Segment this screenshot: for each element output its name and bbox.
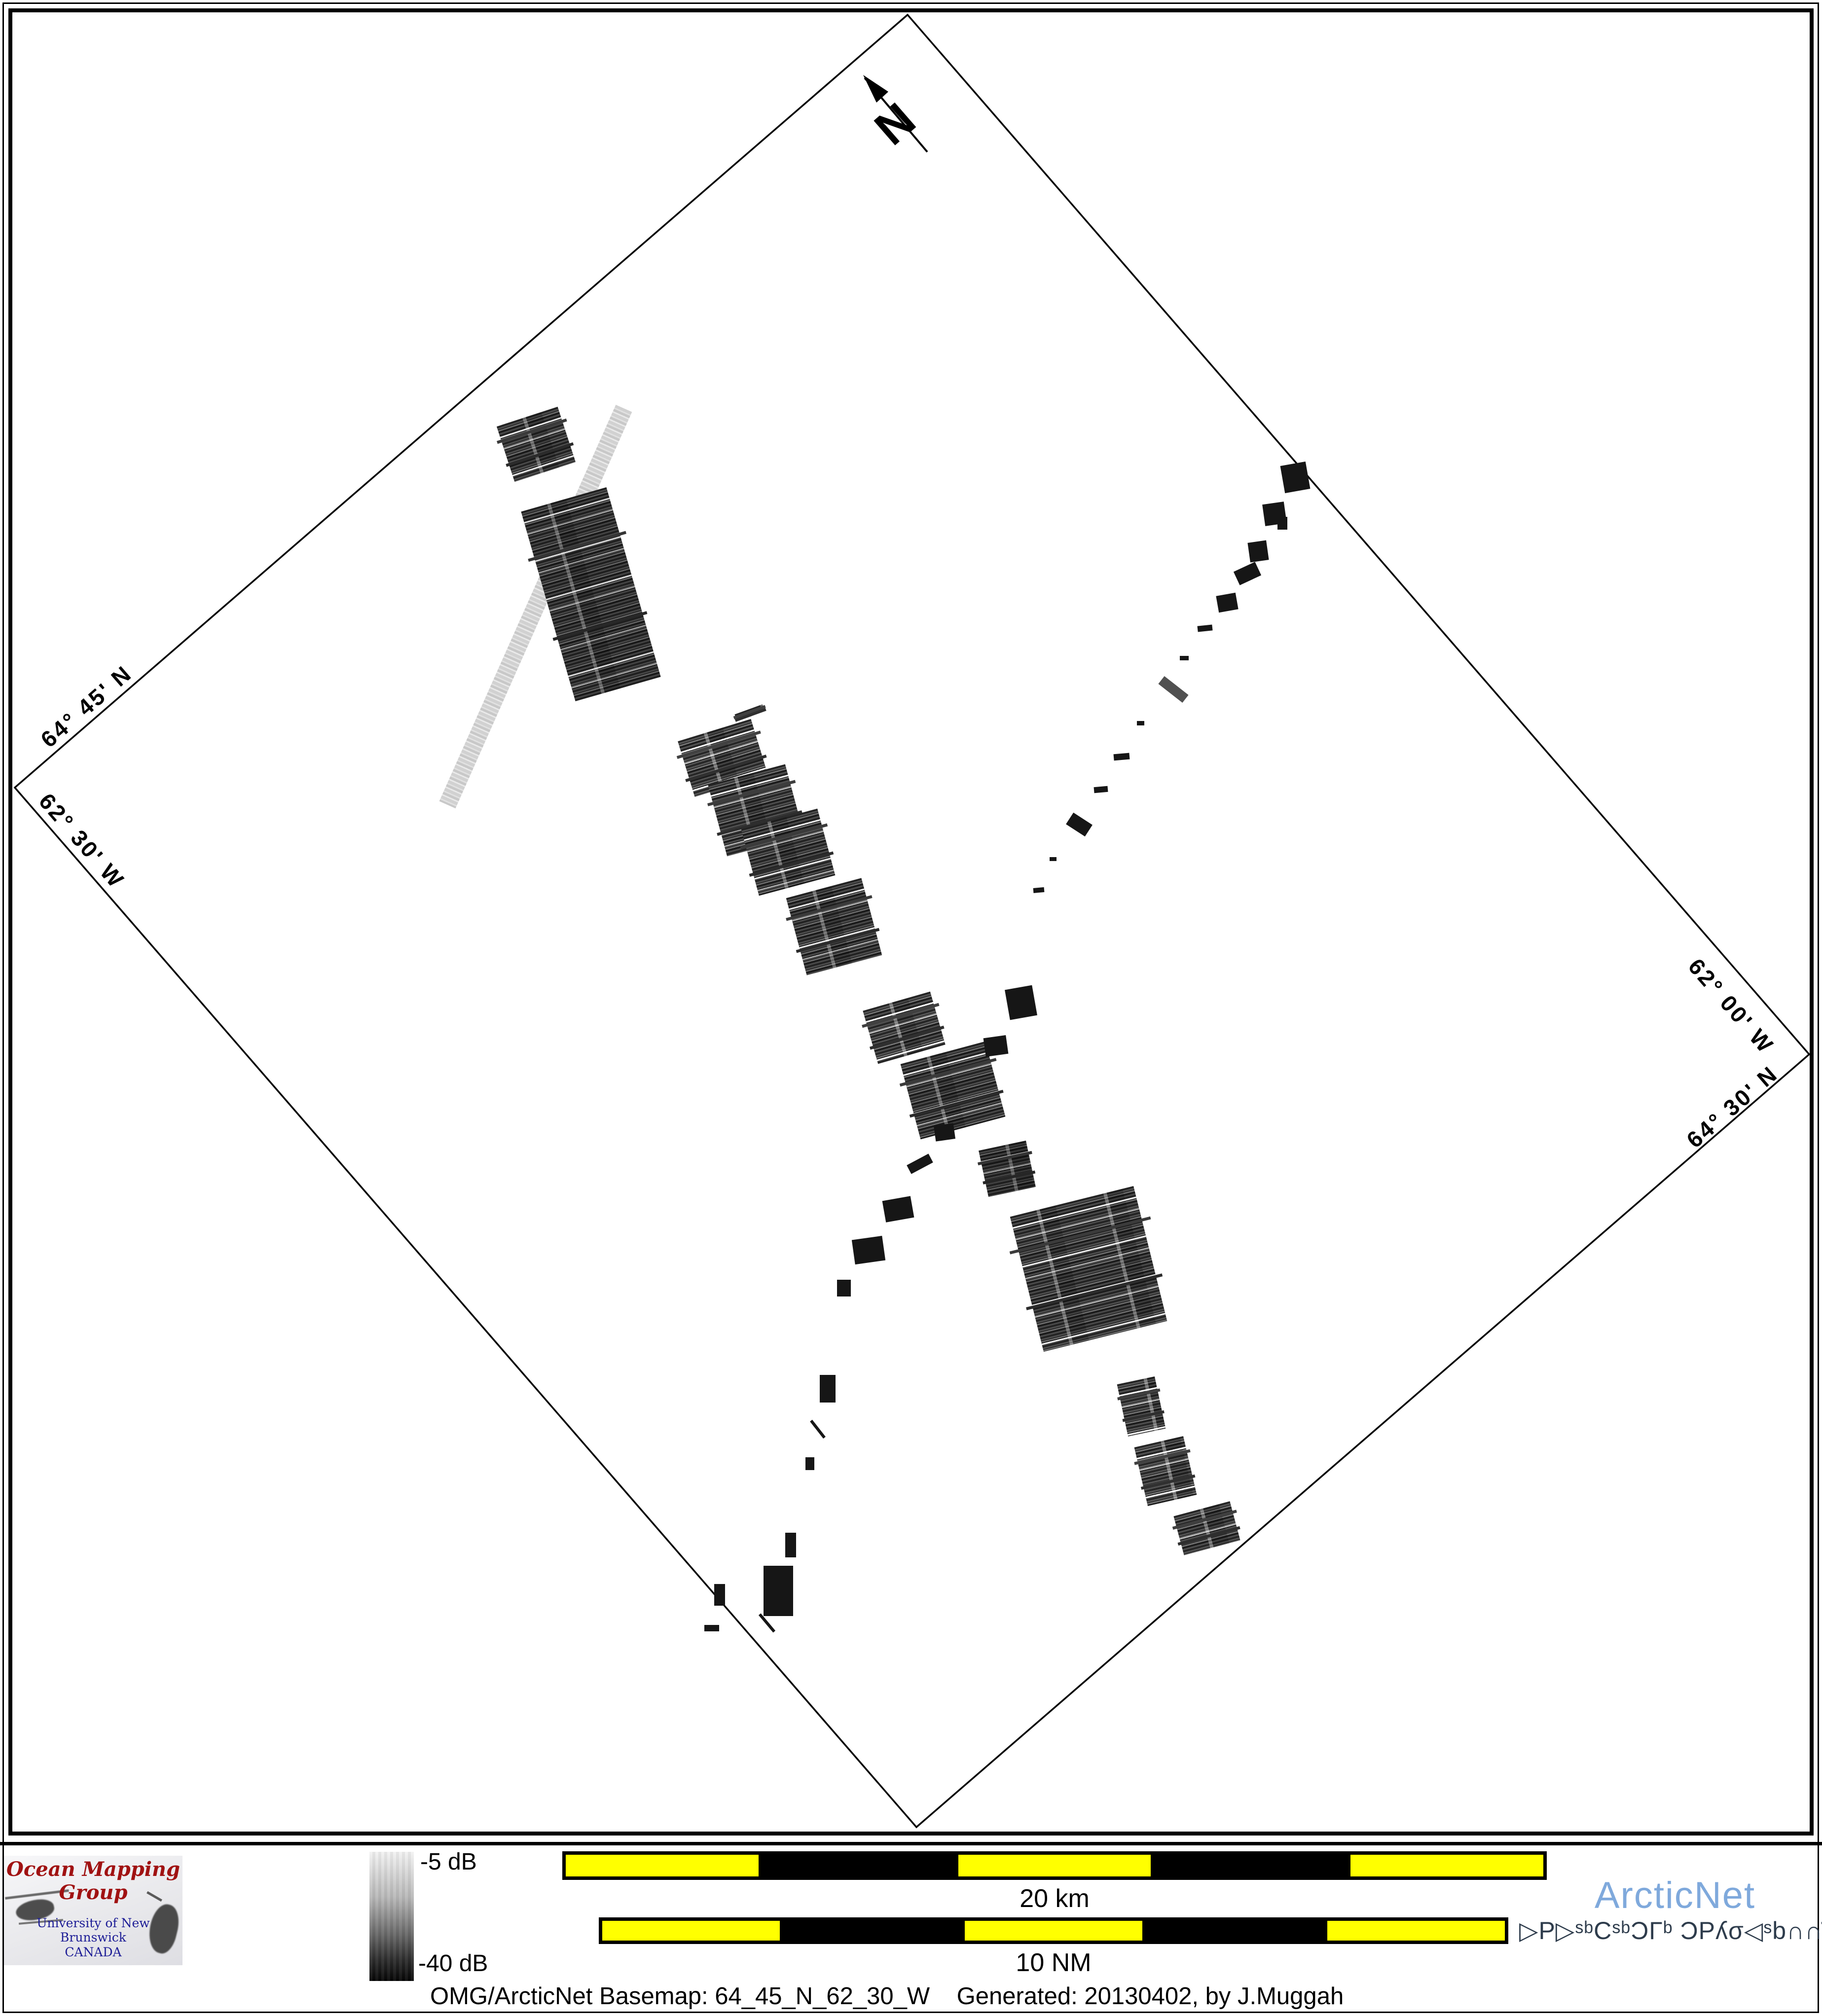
north-arrow-icon: N [863,75,927,155]
arcticnet-logo: ArcticNet [1576,1874,1774,1917]
sounding-dash [820,1375,836,1403]
legend-max-label: -5 dB [420,1848,477,1875]
north-arrow-label: N [865,93,925,155]
graticule-diamond-outline [15,15,1809,1827]
scale-bar-segment-yellow [562,1851,762,1880]
sounding-dash [984,1035,1009,1057]
sounding-dash [1216,593,1238,612]
sounding-dash [1180,656,1189,660]
scale-bar-label: 10 NM [599,1948,1508,1978]
basemap-caption: OMG/ArcticNet Basemap: 64_45_N_62_30_W G… [430,1982,1344,2010]
sounding-dash [785,1533,796,1557]
sounding-dash [1113,753,1130,761]
scale-bar-segment-yellow [961,1917,1146,1944]
scale-bar-segment-yellow [599,1917,783,1944]
multibeam-swath-patch [979,1141,1036,1197]
omg-logo-university: University of New Brunswick [4,1916,182,1944]
sounding-dash [1050,857,1057,861]
sounding-dash [1033,887,1045,893]
scale-bar-segment-black [1154,1851,1347,1880]
sounding-dash [805,1457,814,1470]
sounding-dash [1094,786,1108,793]
omg-logo-country: CANADA [4,1945,182,1959]
sounding-dash [837,1280,851,1296]
scale-bar [599,1917,1508,1944]
sounding-dash [1280,462,1311,493]
sounding-dash [704,1625,719,1631]
scale-bar-segment-yellow [1347,1851,1547,1880]
sounding-dash [934,1123,955,1141]
omg-unb-logo: Ocean Mapping Group University of New Br… [4,1856,182,1965]
scale-bar-segment-black [783,1917,961,1944]
omg-logo-title: Ocean Mapping Group [4,1858,182,1904]
sounding-dash [764,1566,793,1616]
sounding-dash [1247,540,1269,563]
footer-separator [0,1842,1822,1845]
backscatter-legend-gradient [369,1852,414,1981]
sounding-dash [1277,517,1287,530]
legend-min-label: -40 dB [418,1950,488,1977]
sounding-dash [852,1236,885,1264]
scale-bar-label: 20 km [562,1884,1547,1913]
sounding-dash [714,1584,725,1606]
scale-bar [562,1851,1547,1880]
scale-bar-segment-black [762,1851,955,1880]
scale-bar-segment-black [1146,1917,1323,1944]
sounding-dash [1005,985,1037,1020]
sounding-dash [1137,721,1144,725]
arcticnet-inuktitut-text: ▷P▷ˢᵇCˢᵇƆΓᵇ ƆPʎσ◁ˢb∩∩̇ᶜ [1519,1916,1819,1945]
scale-bar-segment-yellow [1324,1917,1508,1944]
scale-bar-segment-yellow [955,1851,1155,1880]
